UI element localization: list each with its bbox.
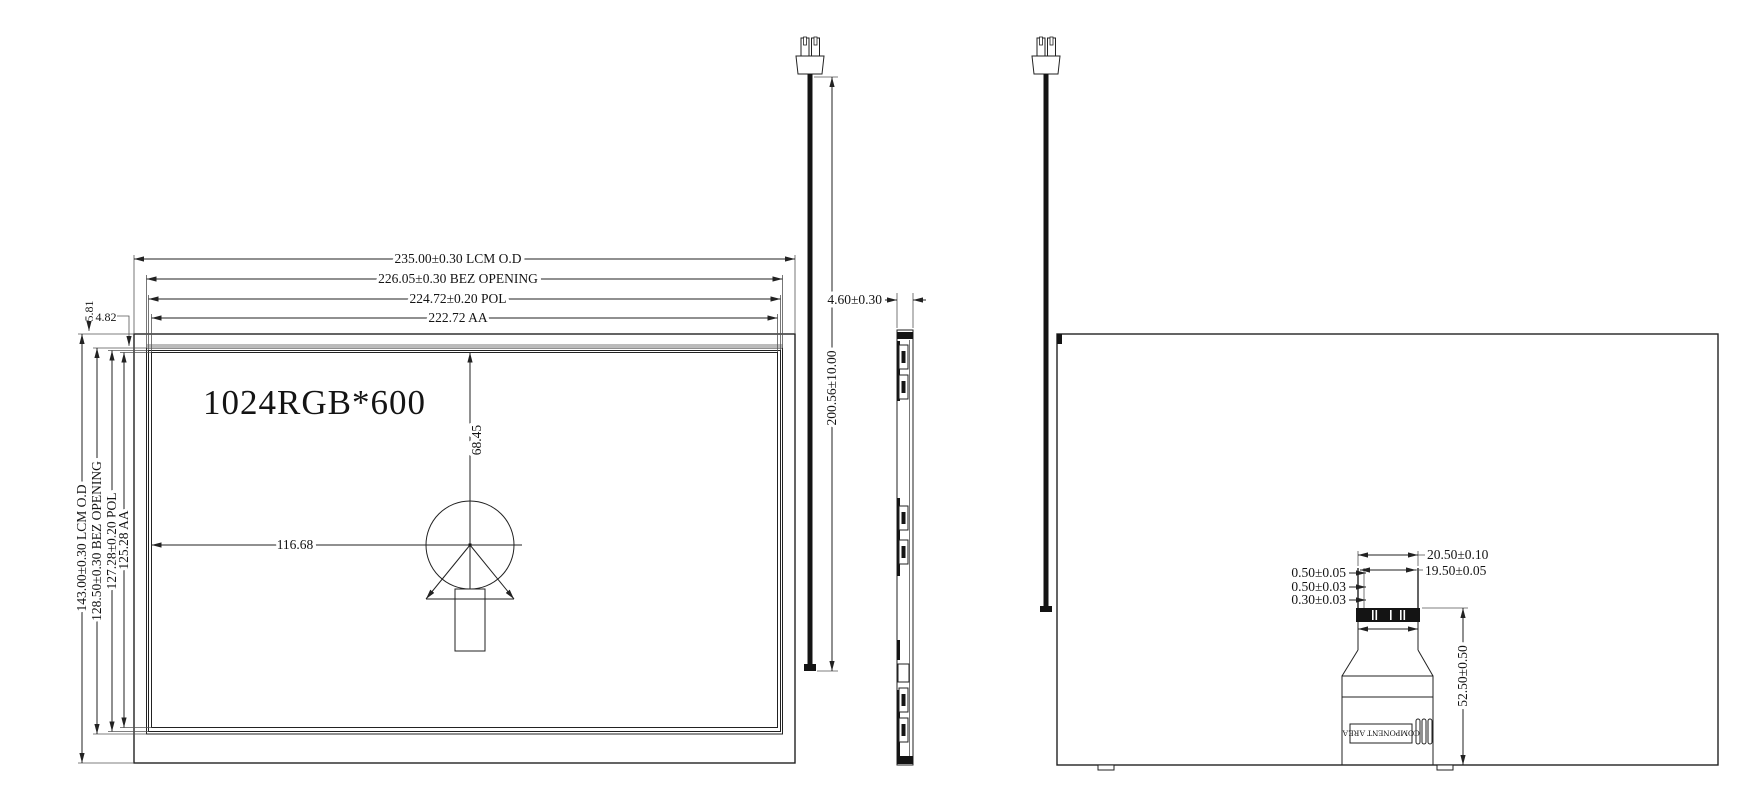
side-cable-end (804, 664, 816, 671)
side-thickness-dimension (884, 293, 926, 328)
dim-cable-length: 200.56±10.00 (824, 350, 839, 425)
dim-width-bez: 226.05±0.30 BEZ OPENING (378, 271, 538, 286)
dim-height-lcm: 143.00±0.30 LCM O.D (74, 484, 89, 611)
dim-top-offset-aa: 5.81 (82, 301, 96, 322)
front-view: 235.00±0.30 LCM O.D 226.05±0.30 BEZ OPEN… (74, 251, 795, 763)
drawing-canvas: 235.00±0.30 LCM O.D 226.05±0.30 BEZ OPEN… (0, 0, 1755, 799)
fpc-width-dimensions (1358, 551, 1425, 570)
dim-center-from-left: 116.68 (277, 537, 314, 552)
back-panel-foot-left (1098, 765, 1114, 770)
fpc-contact-band (1356, 608, 1420, 622)
fpc-body (1342, 676, 1433, 765)
back-cable-connector (1032, 37, 1060, 74)
dim-width-lcm: 235.00±0.30 LCM O.D (394, 251, 521, 266)
back-panel-outline (1057, 334, 1718, 765)
back-view: COMPONENT AREA 20.50±0.10 19.50±0.05 0.5… (1032, 37, 1718, 770)
dim-height-aa: 125.28 AA (116, 510, 131, 570)
side-view: 200.56±10.00 4.60±0.30 (796, 37, 926, 765)
dim-height-bez: 128.50±0.30 BEZ OPENING (89, 461, 104, 621)
side-cable-connector (796, 37, 824, 74)
dim-width-aa: 222.72 AA (428, 310, 488, 325)
back-panel-foot-right (1437, 765, 1453, 770)
dim-fpc-outer-width: 20.50±0.10 (1427, 547, 1489, 562)
dim-layer-3: 0.30±0.03 (1291, 592, 1346, 607)
dim-layer-1: 0.50±0.05 (1291, 565, 1346, 580)
dim-thickness: 4.60±0.30 (827, 292, 882, 307)
side-backlight-cable (808, 74, 813, 664)
dim-fpc-inner-width: 19.50±0.05 (1425, 563, 1487, 578)
lcd-module-drawing-sheet: 235.00±0.30 LCM O.D 226.05±0.30 BEZ OPEN… (0, 0, 1755, 799)
back-backlight-cable (1044, 74, 1049, 606)
back-panel-corner-tab (1057, 334, 1062, 344)
fpc-tail: COMPONENT AREA (1341, 568, 1433, 765)
dim-center-from-top: 68.45 (469, 425, 484, 456)
side-profile-notch (898, 664, 909, 682)
dim-fpc-length: 52.50±0.50 (1455, 645, 1470, 707)
back-cable-end (1040, 606, 1052, 612)
dim-top-offset-bez: 4.82 (96, 310, 117, 324)
side-profile (897, 330, 913, 765)
dim-width-pol: 224.72±0.20 POL (409, 291, 506, 306)
center-marker-stem (455, 589, 485, 651)
screen-resolution-label: 1024RGB*600 (203, 383, 426, 422)
component-area-label: COMPONENT AREA (1341, 729, 1419, 739)
front-top-bezel-bar (147, 344, 783, 348)
